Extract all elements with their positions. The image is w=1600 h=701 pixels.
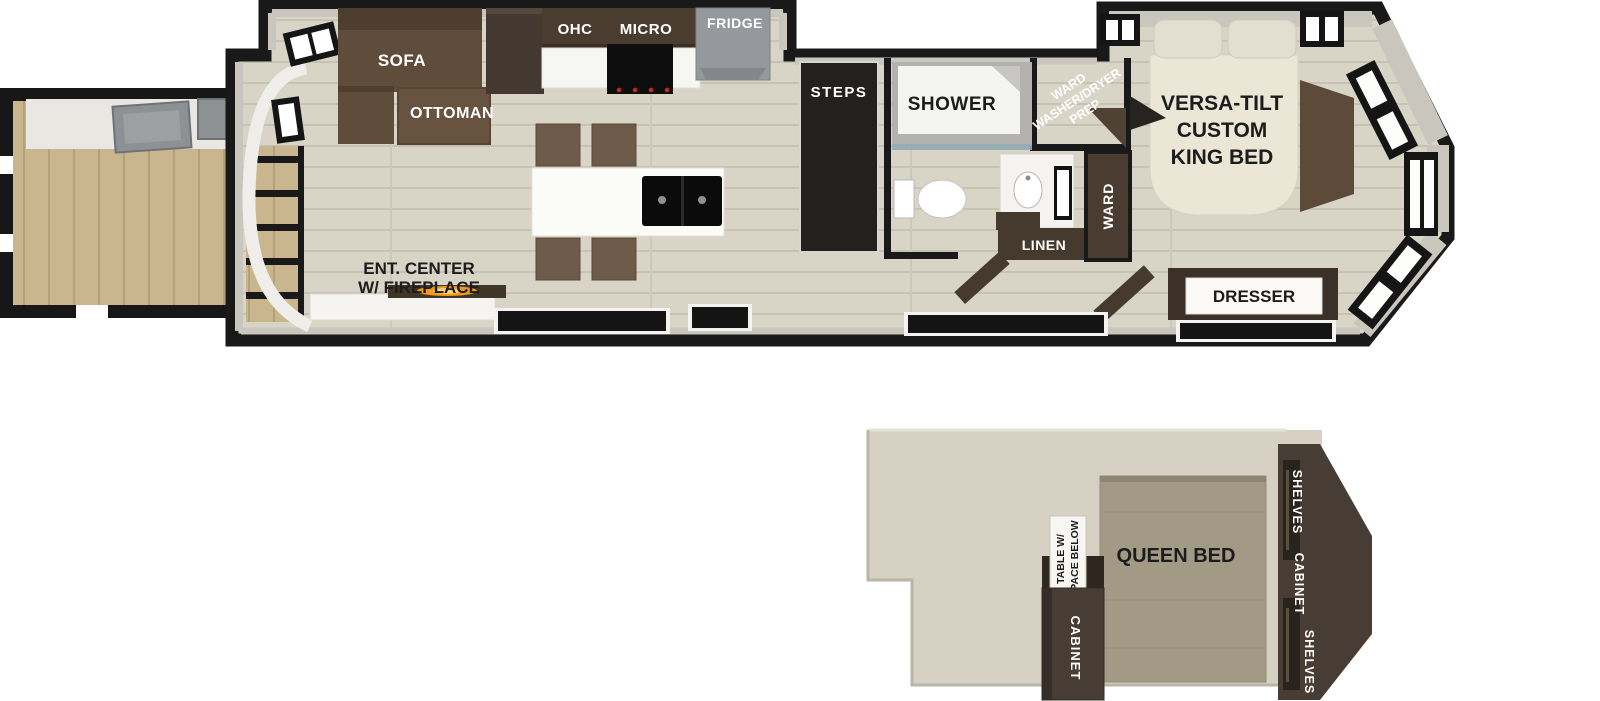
- loft-cabinet-bevel: [1042, 588, 1052, 700]
- shelves-bottom-text: SHELVES: [1302, 630, 1316, 694]
- window: [494, 308, 670, 334]
- shelves-top-label: SHELVES: [1290, 470, 1304, 534]
- queen-bed: [1100, 476, 1266, 682]
- window: [904, 312, 1108, 336]
- bedroom-window: [1300, 11, 1344, 47]
- pillow: [1228, 20, 1296, 58]
- deck-chair: [112, 101, 191, 152]
- toilet-tank: [894, 180, 914, 218]
- bedside-chest: [1300, 80, 1354, 212]
- queen-bed-label: QUEEN BED: [1117, 545, 1236, 567]
- window: [1176, 320, 1336, 342]
- pantry-cabinet: [486, 8, 544, 94]
- dining-chair: [592, 238, 636, 280]
- fridge-label: FRIDGE: [707, 15, 763, 31]
- floorplan: SOFA OTTOMAN ENT. CENTER W/ FIREPLACE OH…: [0, 0, 1600, 701]
- ent-center-label-1: ENT. CENTER: [363, 259, 474, 278]
- vanity-base: [996, 212, 1040, 230]
- king-bed-label-2: CUSTOM: [1177, 119, 1268, 142]
- pantry-top: [486, 8, 544, 14]
- shelf-line: [1286, 608, 1289, 682]
- dining-chair: [536, 238, 580, 280]
- ward-label-text: WARD: [1100, 183, 1116, 230]
- dining-chair: [536, 124, 580, 166]
- ward-label: WARD: [1100, 183, 1116, 230]
- ohc-label: OHC: [558, 21, 593, 38]
- sink-divider: [681, 176, 684, 226]
- shelf-line: [1286, 470, 1289, 550]
- toilet-bowl: [918, 180, 966, 218]
- railing-gap: [76, 305, 108, 318]
- table-label-2: SPACE BELOW: [1069, 520, 1081, 597]
- shower-glass: [892, 144, 1032, 150]
- rear-deck: [0, 88, 238, 318]
- vanity-mirror-glass: [1057, 170, 1069, 216]
- sofa-chaise: [338, 92, 394, 144]
- loft-cabinet-label: CABINET: [1068, 616, 1083, 681]
- shelves-bottom-label: SHELVES: [1302, 630, 1316, 694]
- king-bed-label-1: VERSA-TILT: [1161, 92, 1283, 115]
- railing-gap: [0, 234, 13, 252]
- cap-window-side: [1404, 152, 1438, 236]
- railing-gap: [0, 156, 13, 174]
- table-label-1: TABLE W/: [1055, 534, 1067, 584]
- micro-label: MICRO: [620, 21, 673, 38]
- queen-bed-edge: [1100, 476, 1266, 482]
- shelves-top-text: SHELVES: [1290, 470, 1304, 534]
- vanity-faucet: [1026, 176, 1031, 181]
- range: [607, 44, 673, 94]
- dresser-label: DRESSER: [1213, 287, 1295, 306]
- steps-label: STEPS: [811, 84, 868, 101]
- faucet: [698, 196, 706, 204]
- bedroom-window: [1100, 14, 1140, 46]
- ent-center-label-2: W/ FIREPLACE: [358, 278, 480, 297]
- dining-chair: [592, 124, 636, 166]
- pillow: [1154, 20, 1222, 58]
- cabinet-right-text: CABINET: [1292, 553, 1306, 616]
- floorplan-svg: SOFA OTTOMAN ENT. CENTER W/ FIREPLACE OH…: [0, 0, 1600, 701]
- ottoman-label: OTTOMAN: [410, 105, 494, 122]
- sofa-label: SOFA: [378, 51, 426, 70]
- king-bed-label-3: KING BED: [1171, 146, 1274, 169]
- loft: QUEEN BED TABLE W/ SPACE BELOW CABINET S…: [868, 430, 1372, 700]
- window: [688, 304, 752, 331]
- sofa-back: [338, 8, 482, 30]
- closet-wall: [1030, 144, 1130, 151]
- fridge-base: [700, 68, 766, 80]
- steps-area: STEPS: [800, 62, 878, 252]
- loft-cabinet-label-text: CABINET: [1068, 616, 1083, 681]
- bath-wall: [884, 58, 891, 258]
- faucet: [658, 196, 666, 204]
- shower-label: SHOWER: [908, 94, 997, 115]
- linen-label: LINEN: [1022, 237, 1067, 253]
- cabinet-right-label: CABINET: [1292, 553, 1306, 616]
- bath-wall: [884, 252, 958, 259]
